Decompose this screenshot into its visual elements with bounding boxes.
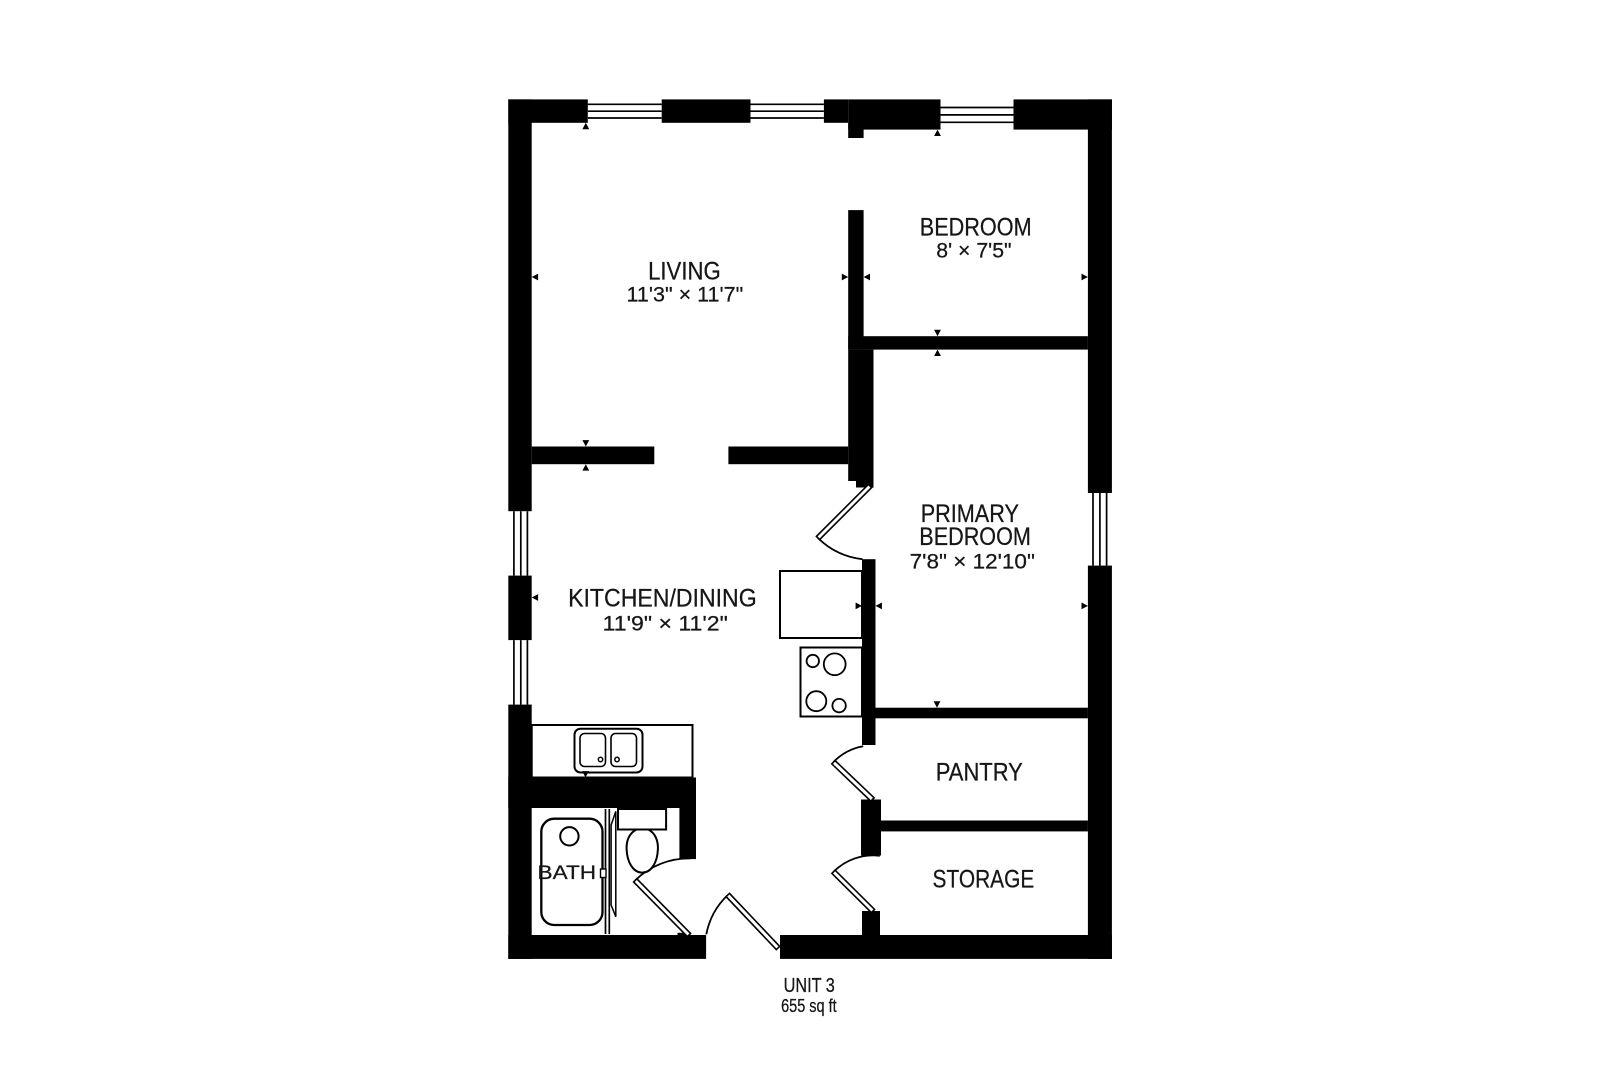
svg-text:LIVING: LIVING [648,257,721,285]
svg-text:PANTRY: PANTRY [936,758,1023,786]
svg-text:8' × 7'5": 8' × 7'5" [936,238,1011,262]
svg-text:BEDROOM: BEDROOM [919,523,1031,551]
svg-text:7'8" × 12'10": 7'8" × 12'10" [910,550,1035,574]
svg-text:BEDROOM: BEDROOM [920,213,1032,241]
svg-text:KITCHEN/DINING: KITCHEN/DINING [568,585,757,613]
svg-text:11'9" × 11'2": 11'9" × 11'2" [603,612,728,636]
svg-text:BATH: BATH [538,863,597,884]
svg-text:UNIT 3: UNIT 3 [784,975,835,997]
svg-text:11'3" × 11'7": 11'3" × 11'7" [627,283,744,307]
svg-text:STORAGE: STORAGE [933,865,1035,893]
svg-text:655 sq ft: 655 sq ft [781,996,837,1016]
